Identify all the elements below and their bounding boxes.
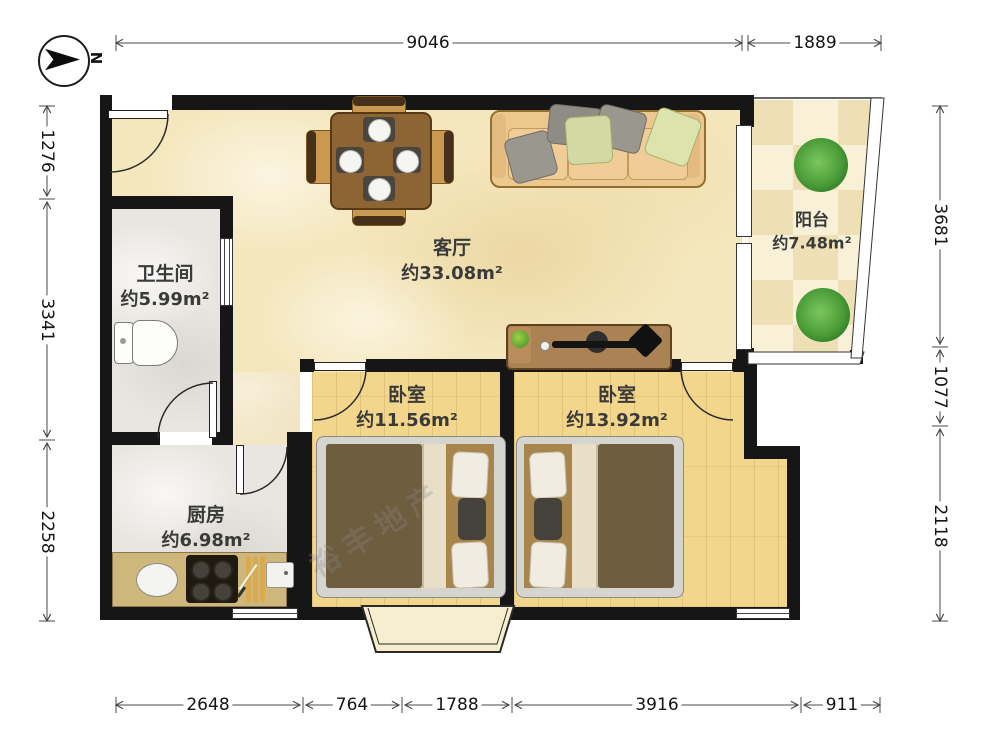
chair-back (307, 131, 316, 183)
room-label-balcony: 阳台 约7.48m² (772, 210, 851, 255)
exterior-notch (757, 372, 787, 446)
chair-back (444, 131, 453, 183)
dimension-label: 1788 (432, 695, 481, 715)
wall-bathroom-bottom-a (112, 432, 160, 445)
dimension-label: 2648 (183, 695, 232, 715)
room-area: 约13.92m² (566, 409, 668, 433)
room-label-bedroom-right: 卧室 约13.92m² (566, 383, 668, 433)
cutting-board (260, 556, 265, 602)
room-area: 约11.56m² (356, 409, 458, 433)
room-label-kitchen: 厨房 约6.98m² (161, 503, 250, 553)
chair-back (353, 97, 405, 106)
bedroom-right-door-leaf (681, 362, 733, 371)
wall-bathroom-top (112, 196, 232, 209)
compass-north-label: N (87, 52, 105, 65)
throw-pillow (564, 114, 613, 165)
cutting-board (253, 556, 258, 602)
stove-burner (213, 560, 233, 580)
room-area: 约33.08m² (401, 262, 503, 286)
bed-pillow (451, 541, 489, 589)
dimension-label: 911 (823, 695, 861, 715)
window-pane-line (737, 613, 789, 614)
wall-bay-corner-left (350, 607, 374, 620)
room-label-bedroom-left: 卧室 约11.56m² (356, 383, 458, 433)
room-name: 卫生间 (120, 262, 209, 288)
chair-back (353, 216, 405, 225)
bathroom-floor (112, 209, 220, 432)
dimension-label: 3341 (37, 295, 57, 344)
bedroom-left-door-leaf (314, 362, 366, 371)
room-name: 客厅 (401, 236, 503, 262)
wall-bottom-left (100, 607, 362, 620)
wall-bay-corner-right (501, 607, 525, 620)
toilet-tank-button (120, 338, 126, 344)
wall-kitchen-right (287, 432, 312, 620)
dimension-label: 1889 (790, 33, 839, 53)
kitchen-appliance (266, 562, 294, 588)
plant (794, 138, 848, 192)
kitchen-door-leaf (236, 445, 244, 494)
room-name: 阳台 (772, 210, 851, 233)
stove-burner (191, 560, 211, 580)
entry-opening (106, 95, 172, 110)
dimension-label: 3916 (632, 695, 681, 715)
toilet-bowl (132, 320, 178, 366)
window-pane-line (233, 613, 297, 614)
bathroom-wall-window (220, 238, 233, 306)
bed-pillow (529, 541, 567, 589)
dimension-label: 2258 (37, 507, 57, 556)
wall-balcony-corner-br (850, 350, 863, 364)
decor-dot (540, 341, 550, 351)
plate (368, 119, 391, 142)
dimension-label: 3681 (930, 200, 950, 249)
room-label-bathroom: 卫生间 约5.99m² (120, 262, 209, 312)
bed-pillow (529, 451, 567, 499)
balcony-sliding-panel-top (736, 125, 752, 237)
kitchen-window (232, 608, 298, 619)
wall-right-lower (787, 446, 800, 620)
bed-fold (572, 444, 598, 588)
appliance-dot (284, 571, 288, 575)
dimension-label: 2118 (930, 501, 950, 550)
room-name: 卧室 (356, 383, 458, 409)
room-label-living: 客厅 约33.08m² (401, 236, 503, 286)
wall-step-vertical (744, 359, 757, 459)
dimension-label: 764 (333, 695, 371, 715)
wall-top (100, 95, 754, 110)
dimension-label: 1077 (930, 362, 950, 411)
stove-burner (213, 582, 233, 602)
room-area: 约6.98m² (161, 529, 250, 553)
bed-cushion-dark (458, 498, 486, 540)
bathroom-door-leaf (209, 381, 217, 438)
entry-door-leaf (108, 110, 168, 119)
bay-window (362, 606, 514, 652)
bed-pillow (451, 451, 489, 499)
room-name: 卧室 (566, 383, 668, 409)
wall-bathroom-right (220, 196, 233, 445)
dimension-label: 9046 (403, 33, 452, 53)
kitchen-sink (136, 563, 178, 597)
bed-blanket (598, 444, 674, 588)
stove-burner (191, 582, 211, 602)
bedroom-right-window (736, 608, 790, 619)
plate (396, 150, 419, 173)
plant (796, 288, 850, 342)
cabinet-plant-leaves (511, 330, 529, 348)
wall-bedroom-left-top-b (366, 359, 502, 372)
bed-cushion-dark (534, 498, 562, 540)
room-area: 约5.99m² (120, 288, 209, 312)
wall-balcony-corner-tl (740, 95, 754, 127)
dimension-label: 1276 (37, 126, 57, 175)
room-area: 约7.48m² (772, 233, 851, 255)
room-name: 厨房 (161, 503, 250, 529)
plate (368, 178, 391, 201)
wall-bedroom-left-top-a (300, 359, 314, 372)
plate (339, 150, 362, 173)
balcony-sliding-panel-bottom (736, 243, 752, 350)
wall-left (100, 95, 112, 620)
floor-plan: 裕丰地产 卫生间 约5.99m² 客厅 约33.08m² 阳台 约7.48m² … (0, 0, 1000, 750)
wall-balcony-corner-bl (736, 348, 754, 364)
